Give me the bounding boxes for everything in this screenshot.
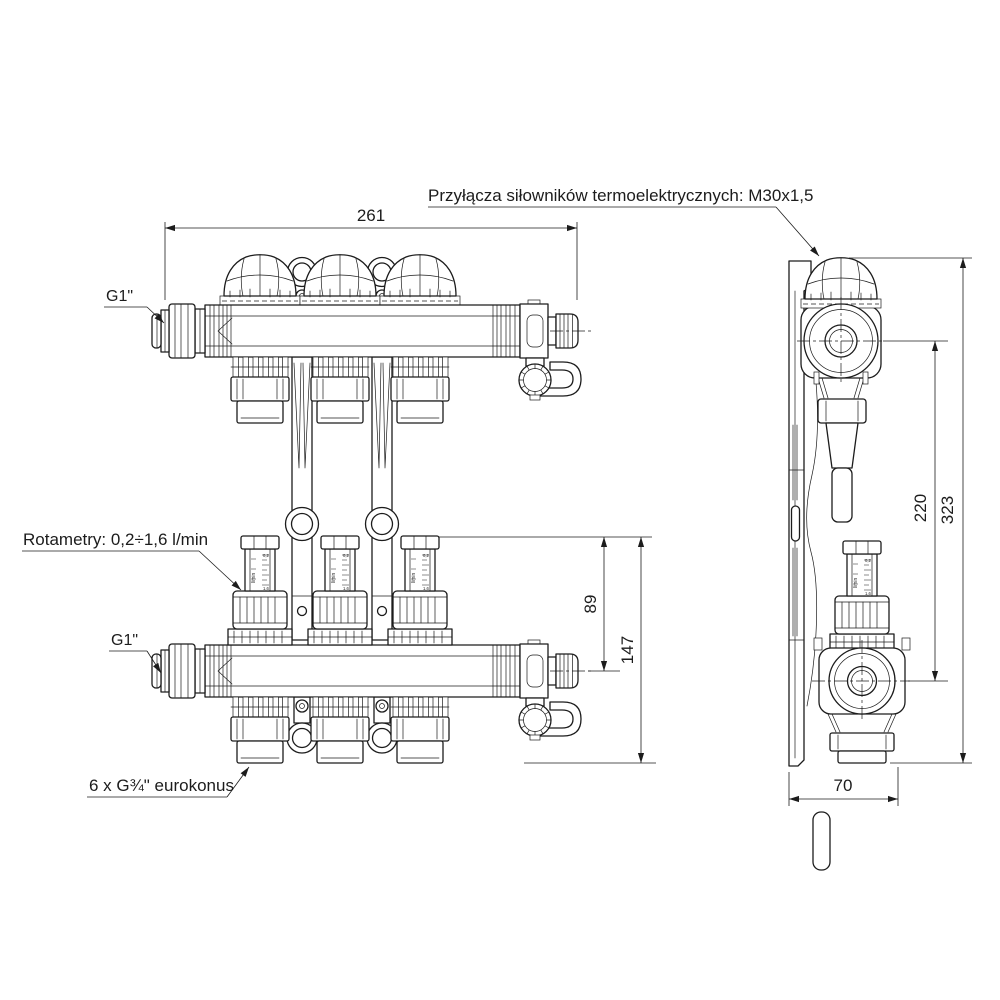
- scale-min: 0,2: [865, 558, 871, 563]
- scale-unit: l/min: [331, 573, 337, 584]
- loop-outlet: [231, 697, 289, 763]
- scale-unit: l/min: [251, 573, 257, 584]
- loop-outlet: [311, 357, 369, 423]
- g1-union-supply: [152, 304, 205, 358]
- flow-meter: [308, 536, 372, 645]
- supply-port-label: G1": [106, 288, 133, 305]
- supply-bar: [205, 305, 520, 357]
- flow-meters-label: Rotametry: 0,2÷1,6 l/min: [23, 530, 208, 549]
- flow-meter: [388, 536, 452, 645]
- scale-max: 1,6: [343, 586, 349, 591]
- dim-depth: 70: [789, 767, 898, 806]
- flow-meter-side: [830, 541, 894, 650]
- loop-outlet: [391, 357, 449, 423]
- flow-meter: [228, 536, 292, 645]
- scale-max: 1,6: [423, 586, 429, 591]
- scale-min: 0,2: [263, 553, 269, 558]
- technical-drawing-page: 261 89 147 220 323 70 Przyłącza siłownik…: [0, 0, 1000, 1000]
- scale-min: 0,2: [343, 553, 349, 558]
- scale-min: 0,2: [423, 553, 429, 558]
- end-valve-assembly-top: [519, 300, 594, 400]
- dim-text-89: 89: [581, 595, 600, 614]
- manifold-drawing: 261 89 147 220 323 70 Przyłącza siłownik…: [0, 0, 1000, 1000]
- dim-text-220: 220: [911, 494, 930, 522]
- bracket-foot-tab: [813, 812, 830, 870]
- loop-outlet: [391, 697, 449, 763]
- thermostatic-valve-cap: [220, 255, 300, 305]
- end-valve-assembly-bottom: [519, 640, 594, 740]
- scale-unit: l/min: [411, 573, 417, 584]
- dim-text-261: 261: [357, 206, 385, 225]
- actuator-ports-label: Przyłącza siłowników termoelektrycznych:…: [428, 186, 813, 205]
- loop-outlet: [311, 697, 369, 763]
- scale-max: 1,6: [865, 591, 871, 596]
- loop-outlet: [231, 357, 289, 423]
- return-port-label: G1": [111, 632, 138, 649]
- dim-text-323: 323: [938, 496, 957, 524]
- return-bar: [205, 645, 520, 697]
- dim-text-147: 147: [618, 636, 637, 664]
- dim-text-70: 70: [834, 776, 853, 795]
- loop-outlets-label: 6 x G¾" eurokonus: [89, 776, 234, 795]
- front-view: [152, 255, 594, 763]
- bracket-slot: [792, 506, 800, 541]
- scale-unit: l/min: [853, 578, 859, 589]
- scale-max: 1,6: [263, 586, 269, 591]
